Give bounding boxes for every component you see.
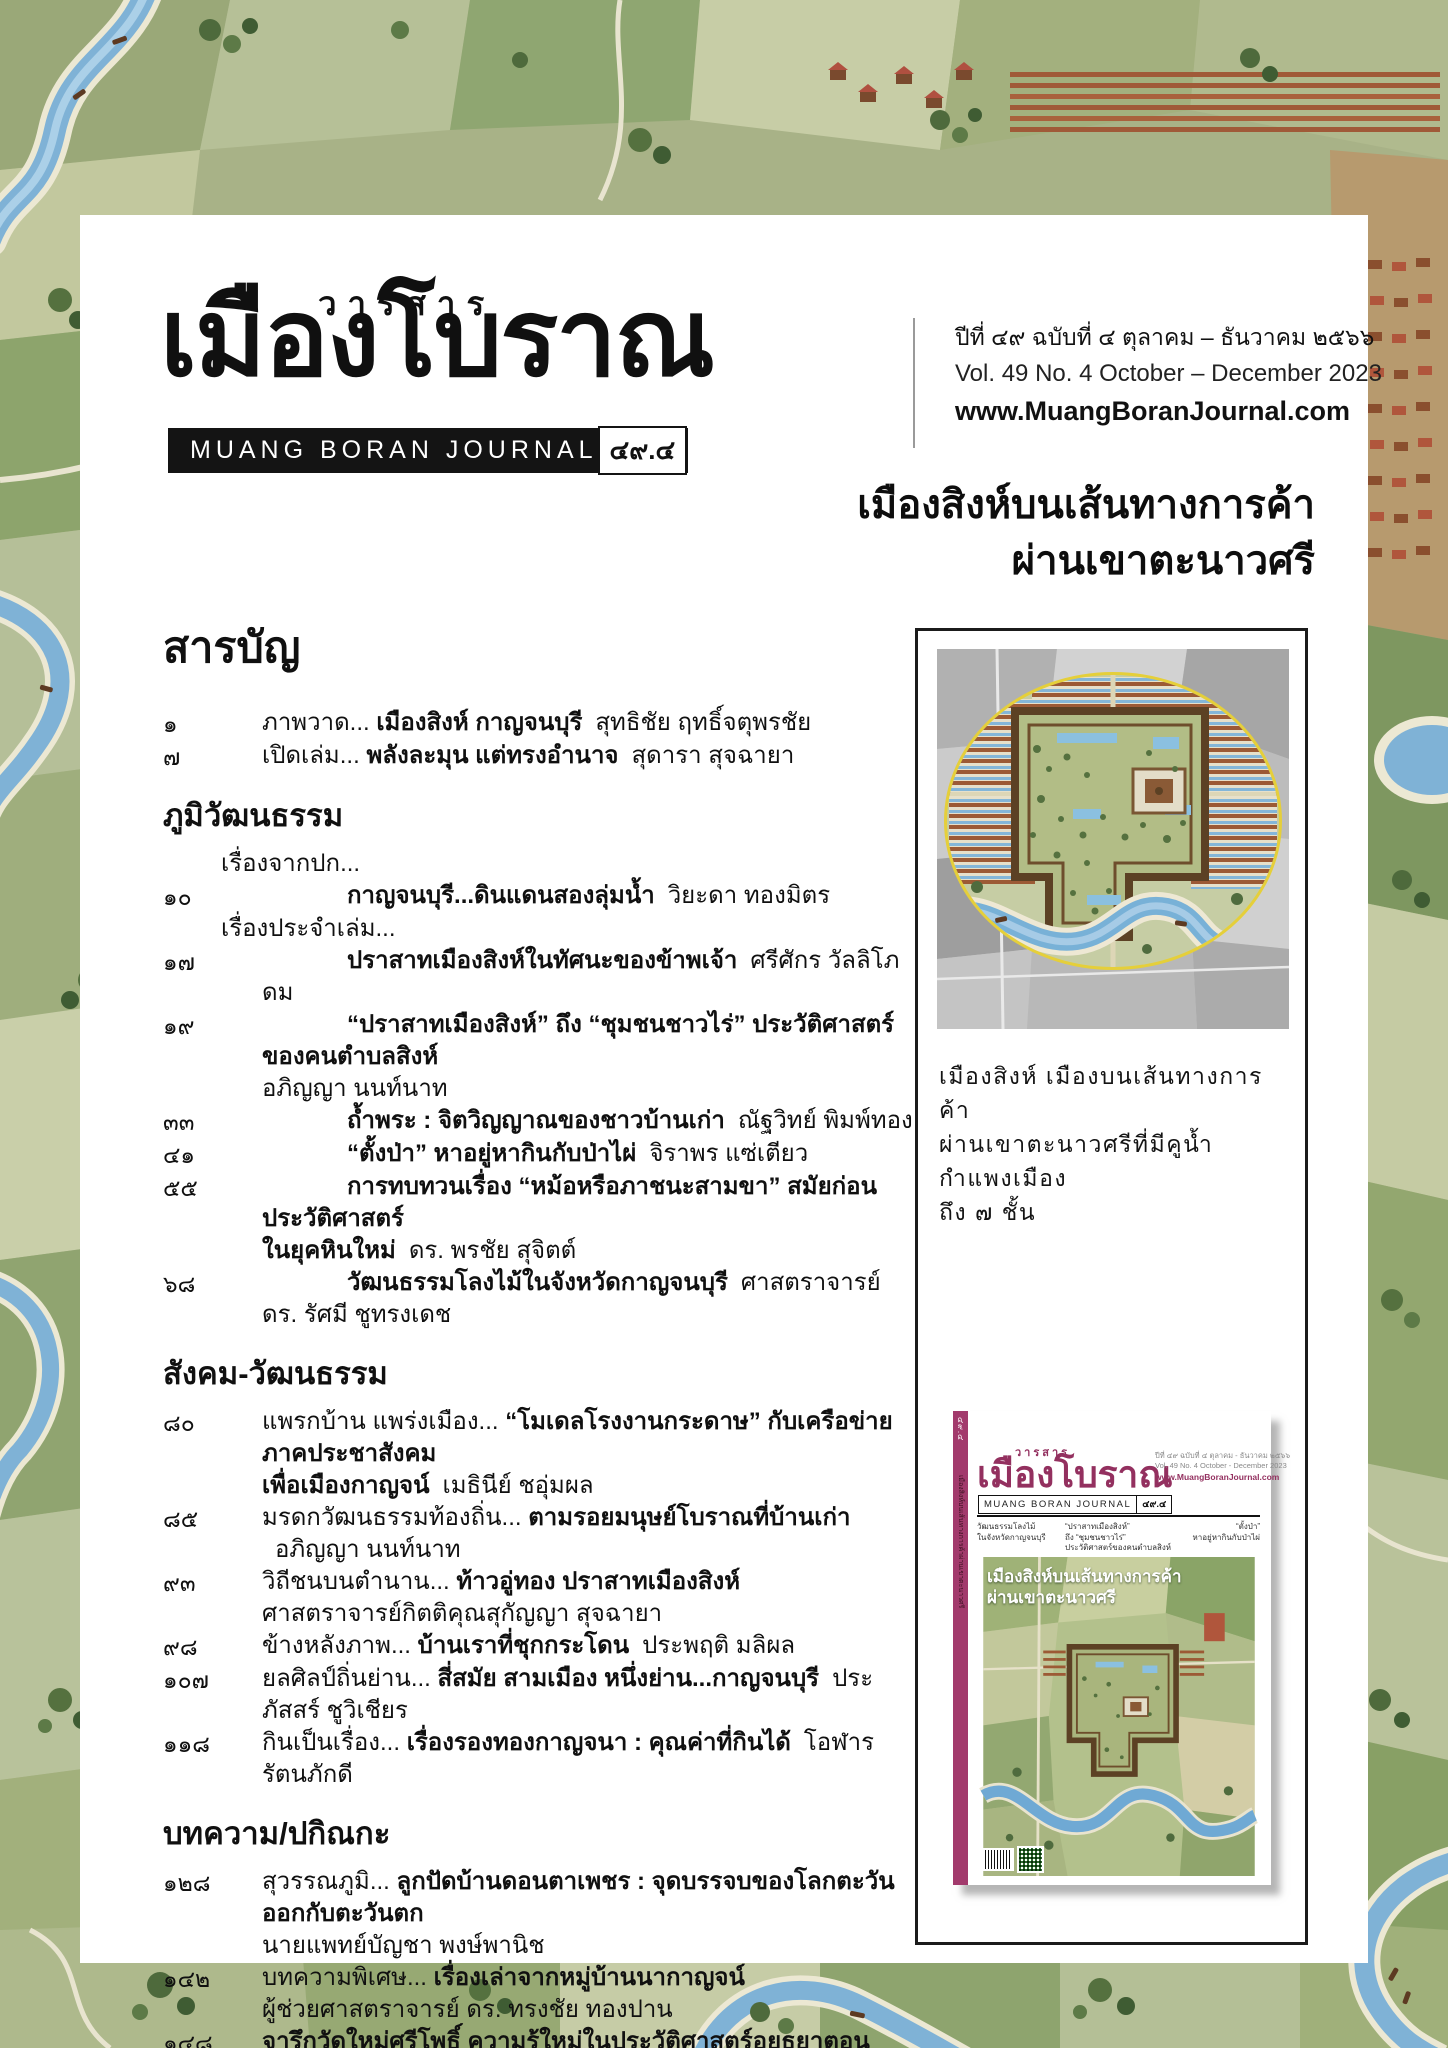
toc-subcategory-label: เรื่องจากปก... [221,848,921,880]
toc-entry-page-number: ๙๘ [163,1630,262,1663]
toc-entry-page-number: ๑๗ [163,945,262,1009]
toc-title: สารบัญ [163,613,921,681]
table-of-contents: สารบัญ ๑ภาพวาด... เมืองสิงห์ กาญจนบุรีสุ… [163,613,921,2048]
issue-code-badge: ๔๙.๔ [598,426,688,475]
cover-spine-code: ๔๙.๔ [954,1417,967,1441]
toc-entry-text: กาญจนบุรี...ดินแดนสองลุ่มน้ำวิยะดา ทองมิ… [262,880,921,913]
toc-section-heading: ภูมิวัฒนธรรม [163,790,921,840]
feature-caption: เมืองสิงห์ เมืองบนเส้นทางการค้า ผ่านเขาต… [939,1059,1269,1229]
toc-entry-page-number: ๘๐ [163,1406,262,1502]
muang-sing-aerial-illustration [937,649,1289,1029]
toc-entry-page-number: ๑๑๘ [163,1727,262,1791]
toc-entry: ๓๓ถ้ำพระ : จิตวิญญาณของชาวบ้านเก่าณัฐวิท… [163,1105,921,1138]
issue-info-block: ปีที่ ๔๙ ฉบับที่ ๔ ตุลาคม – ธันวาคม ๒๕๖๖… [955,319,1317,430]
toc-entry-page-number: ๗ [163,740,262,773]
cover-issue-info: ปีที่ ๔๙ ฉบับที่ ๔ ตุลาคม - ธันวาคม ๒๕๖๖… [1155,1451,1260,1483]
toc-section-heading: บทความ/ปกิณกะ [163,1808,921,1858]
toc-entry: ๕๕การทบทวนเรื่อง “หม้อหรือภาชนะสามขา” สม… [163,1171,921,1267]
cover-thumbnail: ๔๙.๔ เมืองสิงห์บนเส้นทางการค้าผ่านเขาตะน… [953,1411,1271,1885]
toc-entry-page-number: ๑๐๗ [163,1663,262,1727]
toc-entry: ๑๒๘สุวรรณภูมิ... ลูกปัดบ้านดอนตาเพชร : จ… [163,1866,921,1962]
toc-entry-text: การทบทวนเรื่อง “หม้อหรือภาชนะสามขา” สมัย… [262,1171,921,1267]
issue-info-english: Vol. 49 No. 4 October – December 2023 [955,355,1317,392]
toc-entry-text: เปิดเล่ม... พลังละมุน แต่ทรงอำนาจสุดารา … [262,740,921,773]
toc-entry: ๑ภาพวาด... เมืองสิงห์ กาญจนบุรีสุทธิชัย … [163,707,921,740]
caption-line2: ผ่านเขาตะนาวศรีที่มีคูน้ำ กำแพงเมือง [939,1127,1269,1195]
header-divider [913,318,915,448]
toc-entry: ๑๗ปราสาทเมืองสิงห์ในทัศนะของข้าพเจ้าศรีศ… [163,945,921,1009]
masthead-logo: เมืองโบราณ [160,281,713,394]
toc-entry: ๑๐กาญจนบุรี...ดินแดนสองลุ่มน้ำวิยะดา ทอง… [163,880,921,913]
cover-spine-title: เมืองสิงห์บนเส้นทางการค้าผ่านเขาตะนาวศรี [955,1475,966,1608]
feature-frame: เมืองสิงห์ เมืองบนเส้นทางการค้า ผ่านเขาต… [915,628,1308,1945]
headline-line2: ผ่านเขาตะนาวศรี [655,533,1315,589]
cover-website: www.MuangBoranJournal.com [1155,1471,1260,1483]
cover-masthead-bar: MUANG BORAN JOURNAL ๔๙.๔ [978,1495,1172,1514]
qr-code [1017,1846,1044,1873]
cover-issue-code: ๔๙.๔ [1136,1496,1171,1513]
content-card: วารสาร เมืองโบราณ MUANG BORAN JOURNAL ๔๙… [80,215,1368,1963]
toc-section-heading: สังคม-วัฒนธรรม [163,1348,921,1398]
toc-entry-text: จารึกวัดใหม่ศรีโพธิ์ ความรู้ใหม่ในประวัต… [262,2026,921,2048]
cover-teasers: วัฒนธรรมโลงไม้ในจังหวัดกาญจนบุรี“ปราสาทเ… [977,1522,1260,1554]
toc-entry: ๘๐แพรกบ้าน แพร่งเมือง... “โมเดลโรงงานกระ… [163,1406,921,1502]
masthead-english-name: MUANG BORAN JOURNAL [168,436,598,465]
cover-issue-thai: ปีที่ ๔๙ ฉบับที่ ๔ ตุลาคม - ธันวาคม ๒๕๖๖ [1155,1451,1260,1461]
toc-entry-page-number: ๑๒๘ [163,1866,262,1962]
toc-entry-page-number: ๙๓ [163,1566,262,1630]
cover-rule [977,1515,1260,1517]
toc-entry-text: วัฒนธรรมโลงไม้ในจังหวัดกาญจนบุรีศาสตราจา… [262,1267,921,1331]
toc-entry: ๙๓วิถีชนบนตำนาน... ท้าวอู่ทอง ปราสาทเมือ… [163,1566,921,1630]
toc-entry-text: แพรกบ้าน แพร่งเมือง... “โมเดลโรงงานกระดา… [262,1406,921,1502]
toc-entry-page-number: ๔๑ [163,1138,262,1171]
cover-title-line1: เมืองสิงห์บนเส้นทางการค้า [987,1566,1182,1587]
toc-entry-page-number: ๑๙ [163,1009,262,1105]
cover-english-name: MUANG BORAN JOURNAL [979,1498,1136,1511]
toc-entry: ๑๐๗ยลศิลป์ถิ่นย่าน... สี่สมัย สามเมือง ห… [163,1663,921,1727]
toc-entry-page-number: ๘๕ [163,1502,262,1566]
toc-entry-text: สุวรรณภูมิ... ลูกปัดบ้านดอนตาเพชร : จุดบ… [262,1866,921,1962]
cover-title: เมืองสิงห์บนเส้นทางการค้า ผ่านเขาตะนาวศร… [987,1566,1182,1608]
caption-line3: ถึง ๗ ชั้น [939,1195,1269,1229]
toc-entry-text: “ปราสาทเมืองสิงห์” ถึง “ชุมชนชาวไร่” ประ… [262,1009,921,1105]
toc-entry-page-number: ๑๔๘ [163,2026,262,2048]
toc-entry: ๘๕มรดกวัฒนธรรมท้องถิ่น... ตามรอยมนุษย์โบ… [163,1502,921,1566]
toc-entry-text: บทความพิเศษ... เรื่องเล่าจากหมู่บ้านนากา… [262,1962,921,2026]
toc-entry-page-number: ๑ [163,707,262,740]
toc-entry: ๑๙“ปราสาทเมืองสิงห์” ถึง “ชุมชนชาวไร่” ป… [163,1009,921,1105]
toc-entry: ๑๔๘จารึกวัดใหม่ศรีโพธิ์ ความรู้ใหม่ในประ… [163,2026,921,2048]
toc-entry-page-number: ๕๕ [163,1171,262,1267]
cover-title-line2: ผ่านเขาตะนาวศรี [987,1587,1182,1608]
journal-contents-page: วารสาร เมืองโบราณ MUANG BORAN JOURNAL ๔๙… [0,0,1448,2048]
toc-entry-text: ปราสาทเมืองสิงห์ในทัศนะของข้าพเจ้าศรีศัก… [262,945,921,1009]
cover-spine: ๔๙.๔ เมืองสิงห์บนเส้นทางการค้าผ่านเขาตะน… [953,1411,968,1885]
toc-entry: ๑๑๘กินเป็นเรื่อง... เรื่องรองทองกาญจนา :… [163,1727,921,1791]
toc-entry-page-number: ๖๘ [163,1267,262,1331]
toc-sections: ๑ภาพวาด... เมืองสิงห์ กาญจนบุรีสุทธิชัย … [163,707,921,2048]
toc-entry-text: “ตั้งป่า” หาอยู่หากินกับป่าไผ่จิราพร แซ่… [262,1138,921,1171]
toc-entry-text: ภาพวาด... เมืองสิงห์ กาญจนบุรีสุทธิชัย ฤ… [262,707,921,740]
toc-entry-page-number: ๓๓ [163,1105,262,1138]
toc-entry-text: ข้างหลังภาพ... บ้านเราที่ชุกกระโดนประพฤต… [262,1630,921,1663]
toc-entry-page-number: ๑๔๒ [163,1962,262,2026]
toc-subcategory-label: เรื่องประจำเล่ม... [221,913,921,945]
toc-entry: ๗เปิดเล่ม... พลังละมุน แต่ทรงอำนาจสุดารา… [163,740,921,773]
toc-entry-text: กินเป็นเรื่อง... เรื่องรองทองกาญจนา : คุ… [262,1727,921,1791]
toc-entry-text: วิถีชนบนตำนาน... ท้าวอู่ทอง ปราสาทเมืองส… [262,1566,921,1630]
toc-entry: ๑๔๒บทความพิเศษ... เรื่องเล่าจากหมู่บ้านน… [163,1962,921,2026]
barcode [983,1848,1014,1871]
cover-issue-english: Vol. 49 No. 4 October - December 2023 [1155,1461,1260,1471]
toc-entry-text: ถ้ำพระ : จิตวิญญาณของชาวบ้านเก่าณัฐวิทย์… [262,1105,921,1138]
toc-entry-page-number: ๑๐ [163,880,262,913]
masthead-bar: MUANG BORAN JOURNAL ๔๙.๔ [168,428,688,473]
issue-info-thai: ปีที่ ๔๙ ฉบับที่ ๔ ตุลาคม – ธันวาคม ๒๕๖๖ [955,319,1317,355]
headline-line1: เมืองสิงห์บนเส้นทางการค้า [655,477,1315,533]
toc-entry: ๖๘วัฒนธรรมโลงไม้ในจังหวัดกาญจนบุรีศาสตรา… [163,1267,921,1331]
cover-teaser-column: “ตั้งป่า”หาอยู่หากินกับป่าไผ่ [1174,1522,1260,1554]
toc-entry: ๔๑“ตั้งป่า” หาอยู่หากินกับป่าไผ่จิราพร แ… [163,1138,921,1171]
cover-teaser-column: วัฒนธรรมโลงไม้ในจังหวัดกาญจนบุรี [977,1522,1065,1554]
website-link[interactable]: www.MuangBoranJournal.com [955,392,1317,430]
caption-line1: เมืองสิงห์ เมืองบนเส้นทางการค้า [939,1059,1269,1127]
toc-entry-text: มรดกวัฒนธรรมท้องถิ่น... ตามรอยมนุษย์โบรา… [262,1502,921,1566]
cover-teaser-column: “ปราสาทเมืองสิงห์”ถึง “ชุมชนชาวไร่”ประวั… [1065,1522,1174,1554]
toc-entry-text: ยลศิลป์ถิ่นย่าน... สี่สมัย สามเมือง หนึ่… [262,1663,921,1727]
toc-entry: ๙๘ข้างหลังภาพ... บ้านเราที่ชุกกระโดนประพ… [163,1630,921,1663]
cover-story-headline: เมืองสิงห์บนเส้นทางการค้า ผ่านเขาตะนาวศร… [655,477,1315,589]
